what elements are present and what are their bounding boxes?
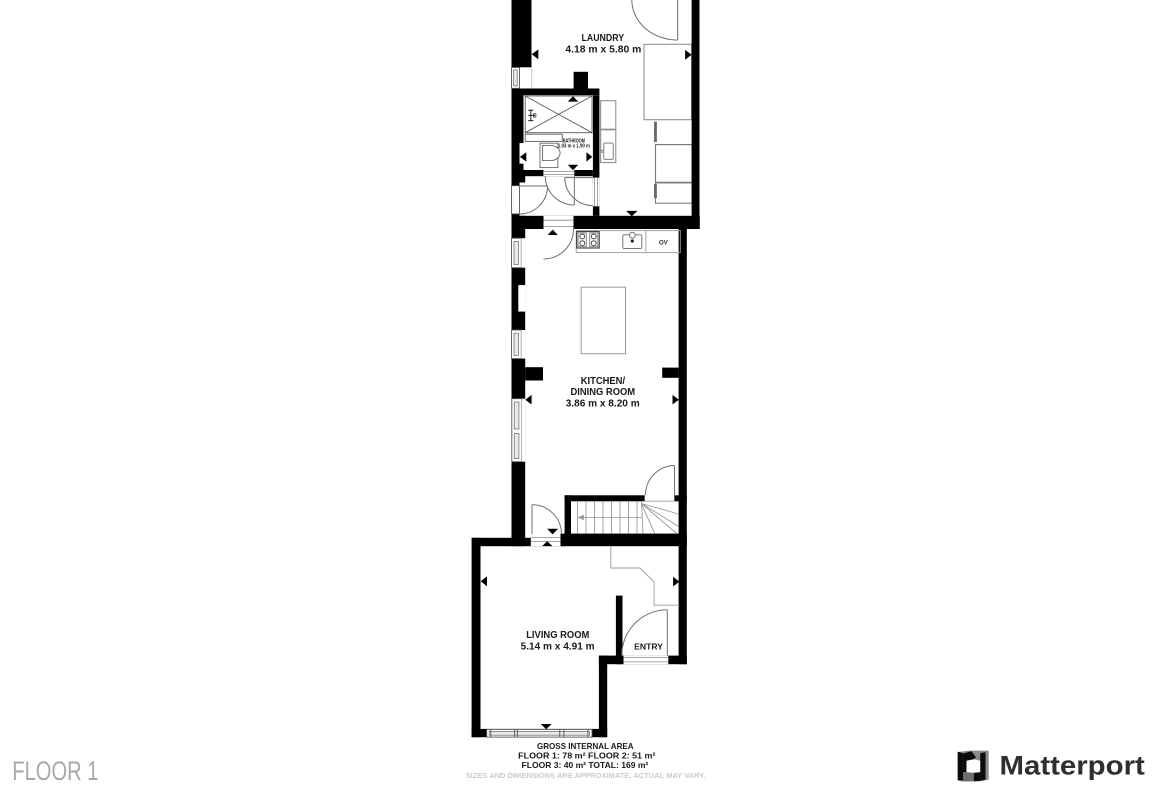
svg-text:SIZES AND DIMENSIONS ARE APPRO: SIZES AND DIMENSIONS ARE APPROXIMATE, AC… [466,771,706,780]
svg-text:4.18 m x 5.80 m: 4.18 m x 5.80 m [565,45,641,56]
svg-text:3.86 m x 8.20 m: 3.86 m x 8.20 m [566,398,640,409]
svg-text:FLOOR 1: FLOOR 1 [12,756,98,785]
svg-text:DINING ROOM: DINING ROOM [571,387,636,398]
svg-text:5.14 m x 4.91 m: 5.14 m x 4.91 m [521,641,595,652]
svg-text:Matterport: Matterport [1000,751,1145,781]
svg-text:1.93 m x 1.90 m: 1.93 m x 1.90 m [558,144,590,150]
svg-text:OV: OV [659,240,669,247]
svg-text:LIVING ROOM: LIVING ROOM [526,630,589,641]
svg-text:FLOOR 1: 78 m² FLOOR 2: 51 m²: FLOOR 1: 78 m² FLOOR 2: 51 m² [518,750,655,760]
svg-text:LAUNDRY: LAUNDRY [582,33,625,44]
svg-text:FLOOR 3: 40 m² TOTAL: 169 m²: FLOOR 3: 40 m² TOTAL: 169 m² [522,760,649,770]
svg-text:KITCHEN/: KITCHEN/ [581,376,625,387]
svg-text:ENTRY: ENTRY [634,642,663,651]
